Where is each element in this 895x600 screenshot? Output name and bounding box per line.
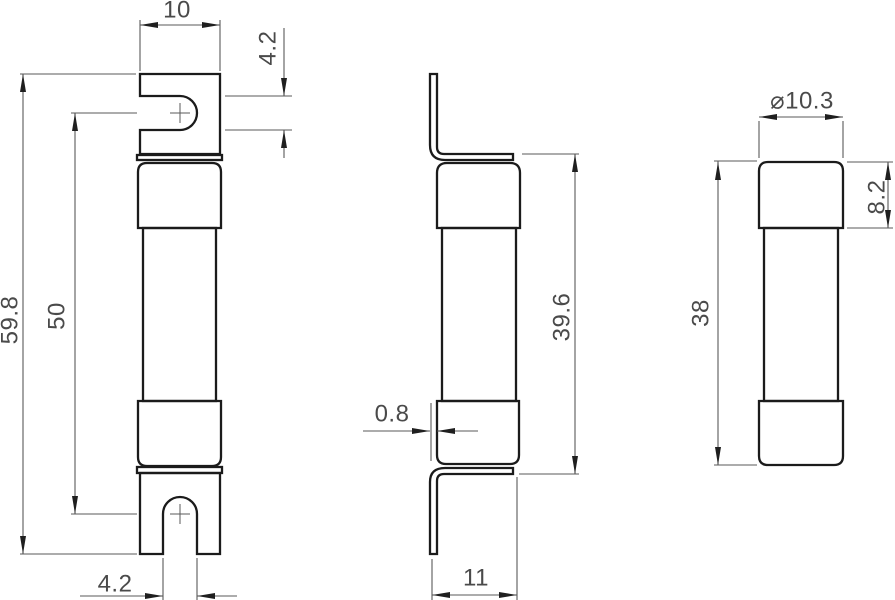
fuse-technical-drawing: 10 4.2 59.8 50 4.2 xyxy=(0,0,895,600)
arrowhead-down xyxy=(572,456,578,474)
arrowhead-left xyxy=(437,428,455,434)
front-top-washer xyxy=(137,155,222,160)
dim-side-blade-span: 39.6 xyxy=(519,154,579,474)
dim-front-slot-top: 4.2 xyxy=(225,28,292,158)
dim-label-side-depth: 11 xyxy=(463,565,489,592)
arrowhead-down xyxy=(715,447,721,465)
dim-label-front-width: 10 xyxy=(163,0,191,24)
front-bottom-cap xyxy=(138,401,221,466)
front-bottom-slot-center-mark xyxy=(170,504,190,524)
side-barrel xyxy=(442,228,516,401)
arrowhead-up xyxy=(20,74,26,92)
dim-body-cap-length: 8.2 xyxy=(847,162,893,228)
body-top-cap xyxy=(759,162,843,228)
front-barrel xyxy=(143,228,216,401)
arrowhead-left xyxy=(432,592,450,598)
arrowhead-right xyxy=(202,22,220,28)
dim-lines xyxy=(714,161,757,465)
side-bottom-blade xyxy=(430,468,513,554)
dim-front-slot-centers: 50 xyxy=(44,113,138,514)
dim-lines xyxy=(71,113,137,514)
arrowhead-up xyxy=(281,130,287,148)
dim-label-front-slot-bottom: 4.2 xyxy=(98,571,133,598)
body-bottom-cap xyxy=(759,401,843,465)
arrowhead-left xyxy=(759,114,777,120)
arrowhead-down xyxy=(20,536,26,554)
dim-lines xyxy=(759,117,843,158)
dim-lines xyxy=(140,20,220,71)
side-view: 0.8 39.6 11 xyxy=(363,74,579,600)
arrowhead-down xyxy=(281,78,287,96)
dim-label-body-diameter: ⌀10.3 xyxy=(770,88,834,115)
dim-body-length: 38 xyxy=(688,161,758,465)
dim-label-body-cap-length: 8.2 xyxy=(864,180,891,215)
dim-side-blade-thickness: 0.8 xyxy=(363,401,478,462)
arrowhead-right xyxy=(412,428,430,434)
arrowhead-up xyxy=(572,154,578,172)
dim-label-front-slot-centers: 50 xyxy=(44,302,71,330)
arrowhead-right xyxy=(499,592,517,598)
dim-body-diameter: ⌀10.3 xyxy=(759,88,843,159)
arrowhead-left xyxy=(140,22,158,28)
front-top-slot-center-mark xyxy=(170,103,190,123)
body-view: ⌀10.3 8.2 38 xyxy=(688,88,894,466)
dim-label-side-blade-span: 39.6 xyxy=(549,293,576,342)
front-view: 10 4.2 59.8 50 4.2 xyxy=(0,0,292,600)
dim-label-front-overall: 59.8 xyxy=(0,296,24,345)
arrowhead-right xyxy=(145,593,163,599)
body-barrel xyxy=(764,228,838,401)
dim-front-width: 10 xyxy=(140,0,220,71)
dim-lines xyxy=(20,74,137,554)
dim-label-side-blade-thickness: 0.8 xyxy=(375,401,410,428)
arrowhead-up xyxy=(715,162,721,180)
dim-label-front-slot-top: 4.2 xyxy=(255,31,282,66)
arrowhead-down xyxy=(72,496,78,514)
dim-label-body-length: 38 xyxy=(688,299,715,327)
arrowhead-left xyxy=(197,593,215,599)
dim-front-slot-bottom: 4.2 xyxy=(80,558,237,600)
drawing-canvas: 10 4.2 59.8 50 4.2 xyxy=(0,0,895,600)
side-top-blade xyxy=(430,74,513,160)
front-top-cap xyxy=(138,163,221,228)
side-top-cap xyxy=(437,163,520,228)
arrowhead-up xyxy=(72,113,78,131)
arrowhead-up xyxy=(885,162,891,180)
arrowhead-right xyxy=(825,114,843,120)
dim-side-depth: 11 xyxy=(432,477,517,600)
